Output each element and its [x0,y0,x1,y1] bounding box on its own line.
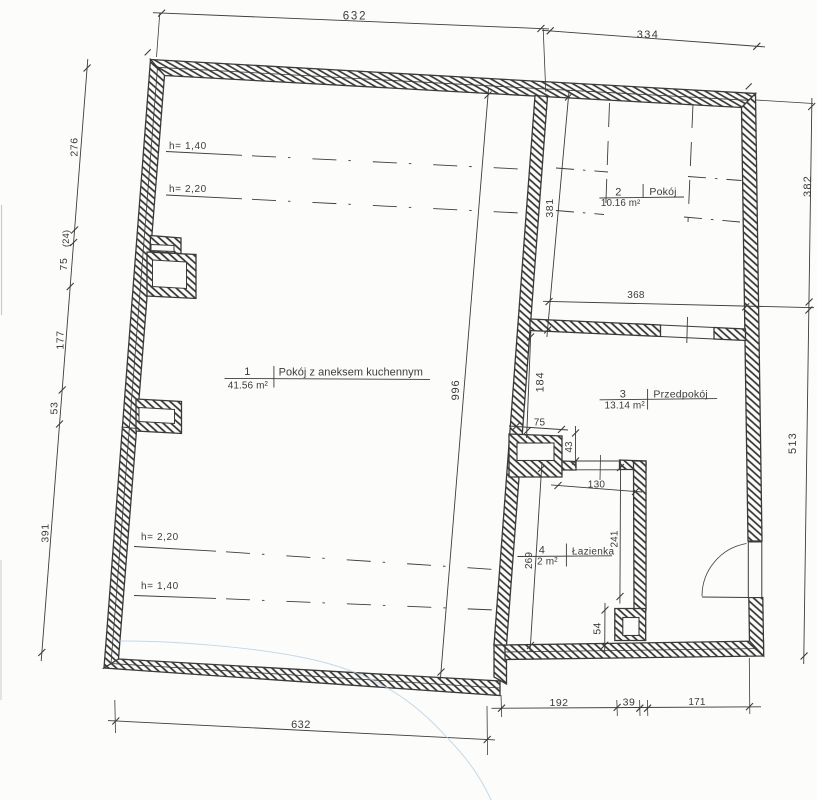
svg-text:192: 192 [549,697,568,709]
svg-text:171: 171 [688,697,706,708]
svg-text:241: 241 [610,530,621,547]
svg-text:177: 177 [54,330,66,349]
svg-text:2 m²: 2 m² [537,557,558,568]
svg-text:Łazienka: Łazienka [572,547,615,558]
svg-text:54: 54 [591,622,603,634]
svg-text:41.56 m²: 41.56 m² [228,381,269,392]
svg-text:h= 2,20: h= 2,20 [141,532,179,543]
svg-text:h= 1,40: h= 1,40 [141,581,179,592]
svg-text:4: 4 [539,545,546,557]
svg-text:(24): (24) [61,230,72,247]
svg-text:632: 632 [343,11,368,23]
svg-text:h= 1,40: h= 1,40 [169,141,207,152]
svg-text:1: 1 [244,366,251,378]
svg-text:43: 43 [564,441,575,453]
svg-text:Pokój: Pokój [649,186,676,198]
svg-text:513: 513 [787,432,799,454]
svg-text:184: 184 [534,372,546,393]
svg-text:381: 381 [544,198,556,217]
svg-text:2: 2 [615,187,622,199]
svg-text:Pokój z aneksem kuchennym: Pokój z aneksem kuchennym [279,367,423,379]
svg-text:368: 368 [627,290,645,301]
svg-text:h= 2,20: h= 2,20 [169,184,207,195]
svg-text:10.16 m²: 10.16 m² [601,198,641,209]
svg-text:632: 632 [291,719,311,731]
svg-text:Przedpokój: Przedpokój [653,389,708,401]
svg-text:334: 334 [637,29,660,41]
svg-text:276: 276 [68,137,80,156]
svg-text:75: 75 [58,258,70,271]
svg-text:130: 130 [588,480,606,491]
svg-text:53: 53 [48,402,60,415]
svg-text:13.14 m²: 13.14 m² [605,401,646,412]
svg-text:996: 996 [450,380,462,401]
svg-text:391: 391 [39,523,51,542]
svg-text:75: 75 [534,418,546,429]
svg-text:269: 269 [524,552,535,569]
svg-text:3: 3 [620,389,627,401]
svg-text:382: 382 [802,175,814,197]
svg-text:39: 39 [623,697,636,709]
